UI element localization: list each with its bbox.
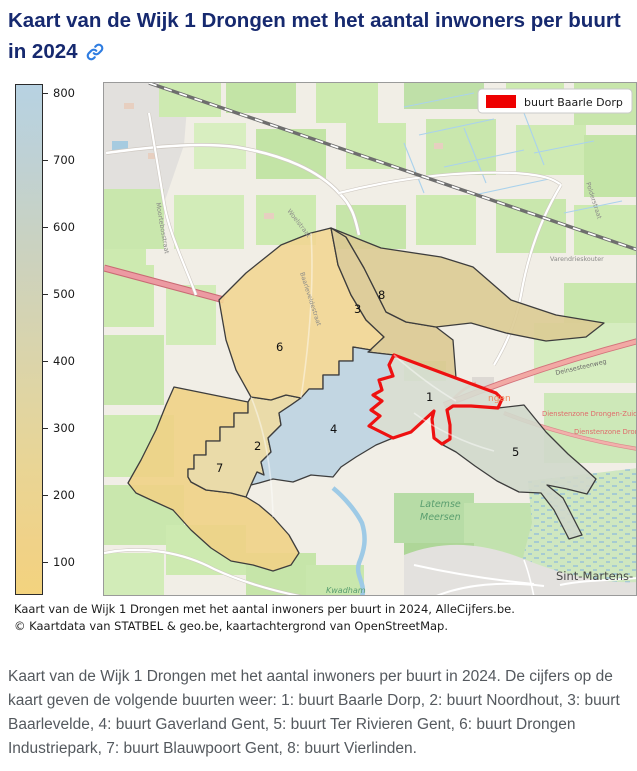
zone-label: Dienstenzone Drongen-Zuid bbox=[542, 410, 637, 418]
colorbar-label: 300 bbox=[53, 421, 75, 435]
colorbar bbox=[15, 84, 43, 595]
region-number-7: 7 bbox=[216, 461, 223, 475]
colorbar-tick bbox=[42, 428, 48, 429]
legend-swatch bbox=[486, 95, 516, 108]
colorbar-label: 800 bbox=[53, 86, 75, 100]
figure-caption: Kaart van de Wijk 1 Drongen met het aant… bbox=[14, 601, 637, 636]
colorbar-label: 500 bbox=[53, 287, 75, 301]
map-canvas: 1 2 3 4 5 6 7 8 Woelstraat Moortebosstra… bbox=[103, 82, 637, 596]
region-number-6: 6 bbox=[276, 340, 283, 354]
town-label-drongen: ngen bbox=[488, 394, 511, 404]
caption-line-1: Kaart van de Wijk 1 Drongen met het aant… bbox=[14, 601, 637, 618]
region-number-5: 5 bbox=[512, 445, 519, 459]
legend-label: buurt Baarle Dorp bbox=[524, 96, 623, 109]
colorbar-label: 100 bbox=[53, 555, 75, 569]
region-number-2: 2 bbox=[254, 439, 261, 453]
nature-label: Latemse bbox=[420, 499, 461, 510]
region-number-1: 1 bbox=[426, 390, 433, 404]
colorbar-tick bbox=[42, 93, 48, 94]
colorbar-tick bbox=[42, 227, 48, 228]
colorbar-label: 600 bbox=[53, 220, 75, 234]
zone-label: Dienstenzone Dronge bbox=[574, 428, 637, 436]
map-svg: 1 2 3 4 5 6 7 8 Woelstraat Moortebosstra… bbox=[104, 83, 637, 596]
colorbar-label: 400 bbox=[53, 354, 75, 368]
colorbar-tick bbox=[42, 495, 48, 496]
hamlet-label: Kwadham bbox=[326, 586, 366, 595]
page-title: Kaart van de Wijk 1 Drongen met het aant… bbox=[8, 6, 629, 68]
colorbar-tick bbox=[42, 562, 48, 563]
region-number-3: 3 bbox=[354, 302, 361, 316]
nature-label: Meersen bbox=[420, 512, 461, 523]
town-label: Sint-Martens- bbox=[556, 569, 633, 583]
colorbar-tick bbox=[42, 160, 48, 161]
page: { "title": { "text": "Kaart van de Wijk … bbox=[0, 6, 637, 761]
region-number-8: 8 bbox=[378, 288, 385, 302]
map-figure: 800 700 600 500 400 300 200 100 bbox=[0, 82, 637, 596]
caption-line-2: © Kaartdata van STATBEL & geo.be, kaarta… bbox=[14, 618, 637, 635]
link-icon[interactable] bbox=[85, 41, 105, 61]
region-number-4: 4 bbox=[330, 422, 337, 436]
colorbar-label: 200 bbox=[53, 488, 75, 502]
street-label: Varendrieskouter bbox=[550, 256, 604, 263]
colorbar-tick bbox=[42, 361, 48, 362]
colorbar-label: 700 bbox=[53, 153, 75, 167]
colorbar-tick bbox=[42, 294, 48, 295]
map-legend: buurt Baarle Dorp bbox=[478, 89, 632, 113]
